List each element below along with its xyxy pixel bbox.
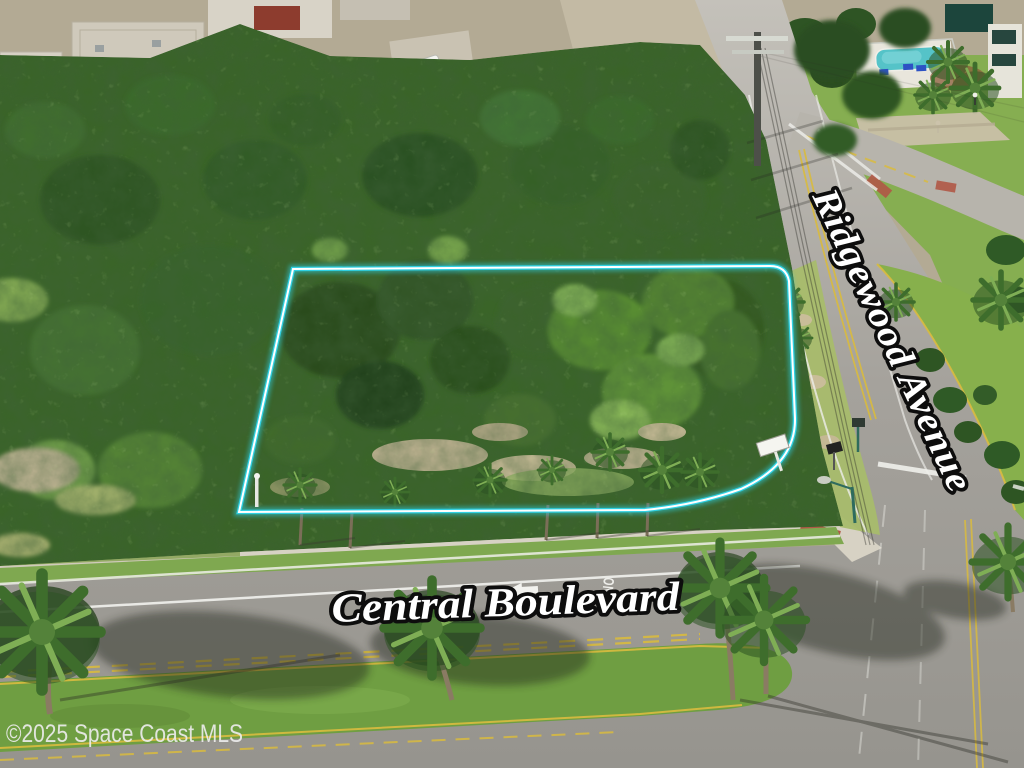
- forest-canopy: [0, 20, 850, 566]
- aerial-listing-photo: ONLY: [0, 0, 1024, 768]
- streetlight-head: [817, 476, 831, 484]
- aerial-photo-canvas: ONLY: [0, 0, 1024, 768]
- street-sign: [852, 418, 865, 427]
- red-roof-section: [254, 6, 300, 30]
- pool-lounger: [903, 64, 913, 71]
- mls-watermark: ©2025 Space Coast MLS: [6, 720, 243, 748]
- dark-roof-clubhouse: [945, 4, 993, 32]
- pole-crossarm: [726, 36, 788, 41]
- rooftop-ac-unit: [95, 45, 104, 52]
